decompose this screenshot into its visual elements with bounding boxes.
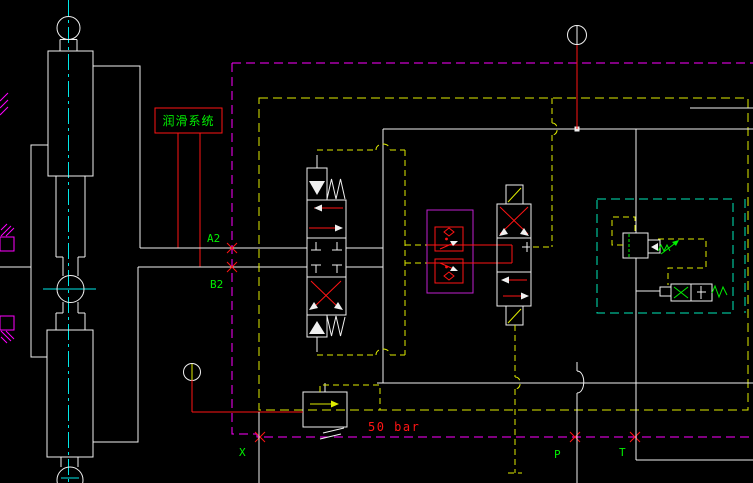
check-valve-icon bbox=[444, 272, 454, 280]
cylinder-pipes[interactable] bbox=[0, 66, 140, 442]
gauge-top[interactable] bbox=[568, 26, 587, 130]
mount-symbols bbox=[0, 93, 14, 343]
relief-pilot bbox=[320, 385, 380, 410]
check-valve-icon bbox=[444, 228, 454, 236]
gauge-bottom[interactable] bbox=[184, 364, 304, 483]
arrowhead bbox=[335, 225, 343, 232]
lubrication-label: 润滑系统 bbox=[162, 114, 214, 128]
arrowhead bbox=[334, 302, 343, 310]
solenoid-triangle-up bbox=[309, 321, 325, 334]
directional-valve-2[interactable] bbox=[497, 185, 531, 325]
label-x: X bbox=[239, 446, 246, 459]
reducing-valve bbox=[623, 233, 648, 258]
flow-control-block[interactable] bbox=[427, 210, 512, 293]
spring-bottom bbox=[327, 316, 345, 336]
manifold-boundary bbox=[232, 63, 753, 437]
label-t: T bbox=[619, 446, 626, 459]
ball-joint-bottom bbox=[57, 467, 83, 483]
relief-setting-label: 50 bar bbox=[368, 420, 420, 434]
relief-valve[interactable]: 50 bar bbox=[303, 383, 420, 439]
spring-top bbox=[327, 179, 345, 199]
arrowhead bbox=[651, 243, 658, 251]
lubrication-leads bbox=[178, 133, 200, 267]
arrowhead bbox=[309, 302, 318, 310]
system-boundary bbox=[259, 98, 748, 410]
arrowhead bbox=[520, 228, 529, 236]
hydraulic-schematic[interactable]: 润滑系统 A2 B2 X P T bbox=[0, 0, 753, 483]
arrowhead bbox=[314, 205, 322, 212]
main-directional-valve[interactable] bbox=[307, 155, 346, 352]
label-a2: A2 bbox=[207, 232, 220, 245]
arrowhead bbox=[521, 293, 529, 300]
cylinder-centerline bbox=[43, 0, 96, 483]
label-b2: B2 bbox=[210, 278, 223, 291]
cad-canvas[interactable]: 润滑系统 A2 B2 X P T bbox=[0, 0, 753, 483]
spring bbox=[712, 286, 727, 297]
pilot-lines-valve2 bbox=[508, 98, 557, 473]
arrowhead bbox=[331, 401, 339, 408]
arrowhead bbox=[501, 277, 509, 284]
label-p: P bbox=[554, 448, 561, 461]
solenoid-triangle-down bbox=[309, 181, 325, 195]
arrowhead bbox=[499, 228, 508, 236]
manifold-lines[interactable] bbox=[377, 108, 753, 483]
pressure-module[interactable] bbox=[597, 199, 745, 313]
hydraulic-cylinder[interactable] bbox=[47, 17, 93, 483]
